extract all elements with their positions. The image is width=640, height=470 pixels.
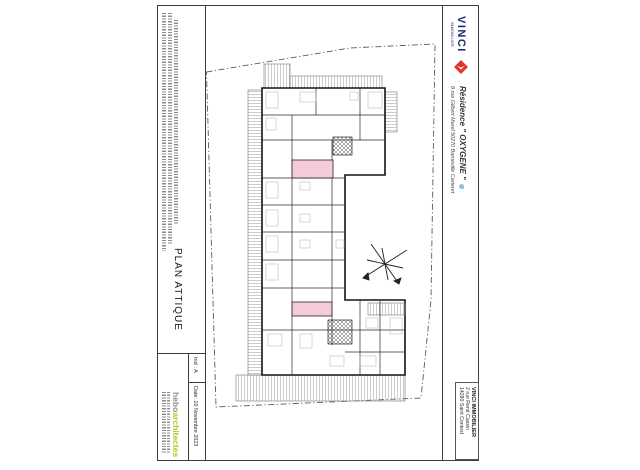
fine-print-line (168, 13, 172, 245)
project-address: 8 rue Gilbert Marel 50270 Barneville Car… (449, 86, 455, 244)
developer-street: 2 rue René Cassin (464, 387, 470, 455)
architect-name: hebo (171, 392, 181, 412)
developer-name: VINCI IMMOBILIER (470, 387, 476, 455)
developer-address-box: VINCI IMMOBILIER 2 rue René Cassin 14280… (455, 382, 479, 460)
developer-city: 14280 Saint Contest (458, 387, 464, 455)
date-label: Date: 10 Novembre 2023 (192, 386, 198, 460)
vinci-diamond-icon (453, 59, 469, 75)
right-titleblock-divider (442, 5, 443, 461)
vinci-logo-subtext: IMMOBILIER (450, 22, 454, 62)
index-label: Ind : A (192, 357, 198, 381)
titleblock-rule (188, 382, 205, 383)
drawing-sheet: PLAN ATTIQUE Ind : A Date: 10 Novembre 2… (0, 0, 640, 470)
compass-rose-icon (363, 244, 407, 284)
plan-title: PLAN ATTIQUE (172, 248, 183, 343)
titleblock-rule (188, 353, 189, 461)
floor-plan (205, 5, 442, 462)
vinci-logo-text: VINCI (455, 16, 467, 62)
titleblock-rule (157, 353, 205, 354)
wing-balcony (368, 303, 405, 315)
architect-suffix: architectes (171, 412, 181, 457)
project-title: Résidence " OXYGENE " (458, 86, 467, 180)
fine-print-line (167, 392, 171, 454)
fine-print-line (162, 392, 166, 454)
project-title-block: Résidence " OXYGENE " 8 rue Gilbert Mare… (449, 86, 468, 244)
fine-print-line (174, 20, 178, 225)
wave-icon (459, 184, 464, 189)
fine-print-line (162, 13, 166, 251)
